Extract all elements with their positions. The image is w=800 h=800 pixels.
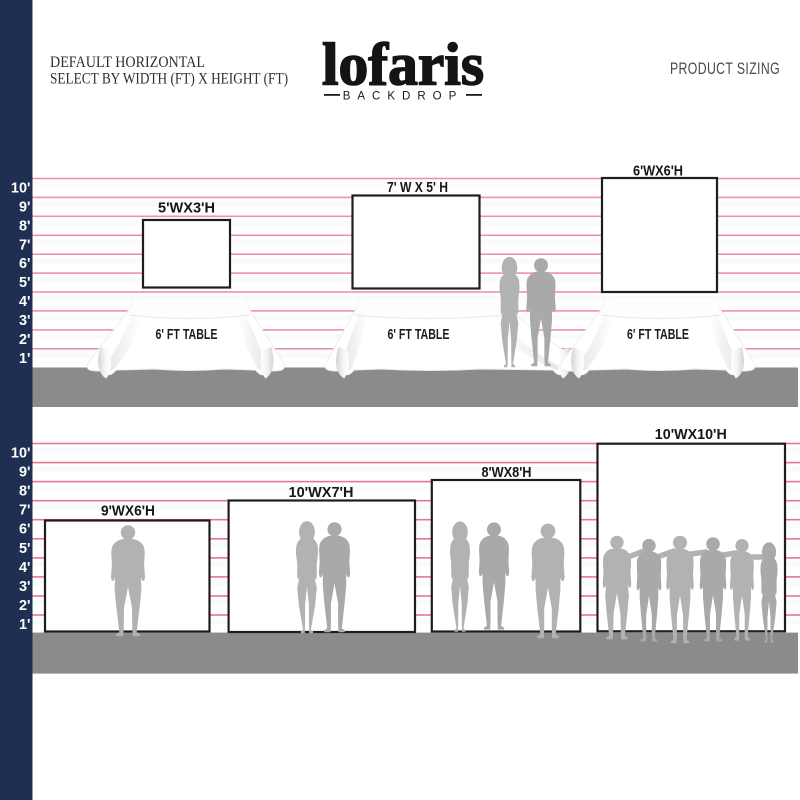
- svg-text:5': 5': [19, 275, 31, 291]
- svg-text:6': 6': [19, 522, 31, 538]
- svg-text:2': 2': [19, 332, 31, 348]
- svg-text:10': 10': [11, 446, 31, 462]
- svg-text:4': 4': [19, 560, 31, 576]
- svg-text:3': 3': [19, 313, 31, 329]
- svg-text:8'WX8'H: 8'WX8'H: [482, 465, 532, 481]
- svg-text:7': 7': [19, 237, 31, 253]
- svg-text:10': 10': [11, 181, 31, 197]
- svg-text:5'WX3'H: 5'WX3'H: [158, 201, 215, 217]
- svg-text:8': 8': [19, 218, 31, 234]
- svg-text:4': 4': [19, 294, 31, 310]
- svg-text:5': 5': [19, 541, 31, 557]
- svg-text:6' FT TABLE: 6' FT TABLE: [627, 327, 689, 343]
- svg-text:10'WX7'H: 10'WX7'H: [289, 485, 354, 501]
- svg-text:6' FT TABLE: 6' FT TABLE: [388, 327, 450, 343]
- svg-text:6' FT TABLE: 6' FT TABLE: [156, 327, 218, 343]
- svg-text:BACKDROP: BACKDROP: [343, 91, 464, 103]
- svg-text:1': 1': [19, 351, 31, 367]
- svg-text:6'WX6'H: 6'WX6'H: [633, 164, 683, 180]
- svg-text:9': 9': [19, 199, 31, 215]
- svg-text:SELECT BY WIDTH (FT) X HEIGHT: SELECT BY WIDTH (FT) X HEIGHT (FT): [50, 71, 288, 88]
- svg-text:7' W X 5' H: 7' W X 5' H: [387, 180, 448, 196]
- svg-text:10'WX10'H: 10'WX10'H: [655, 427, 727, 443]
- svg-text:8': 8': [19, 484, 31, 500]
- svg-text:7': 7': [19, 503, 31, 519]
- svg-text:6': 6': [19, 256, 31, 272]
- svg-text:9'WX6'H: 9'WX6'H: [101, 504, 155, 520]
- svg-text:9': 9': [19, 465, 31, 481]
- svg-text:PRODUCT SIZING: PRODUCT SIZING: [670, 60, 780, 78]
- svg-text:1': 1': [19, 617, 31, 633]
- svg-text:2': 2': [19, 598, 31, 614]
- svg-text:DEFAULT HORIZONTAL: DEFAULT HORIZONTAL: [50, 54, 205, 71]
- svg-text:3': 3': [19, 579, 31, 595]
- svg-text:lofaris: lofaris: [322, 32, 484, 98]
